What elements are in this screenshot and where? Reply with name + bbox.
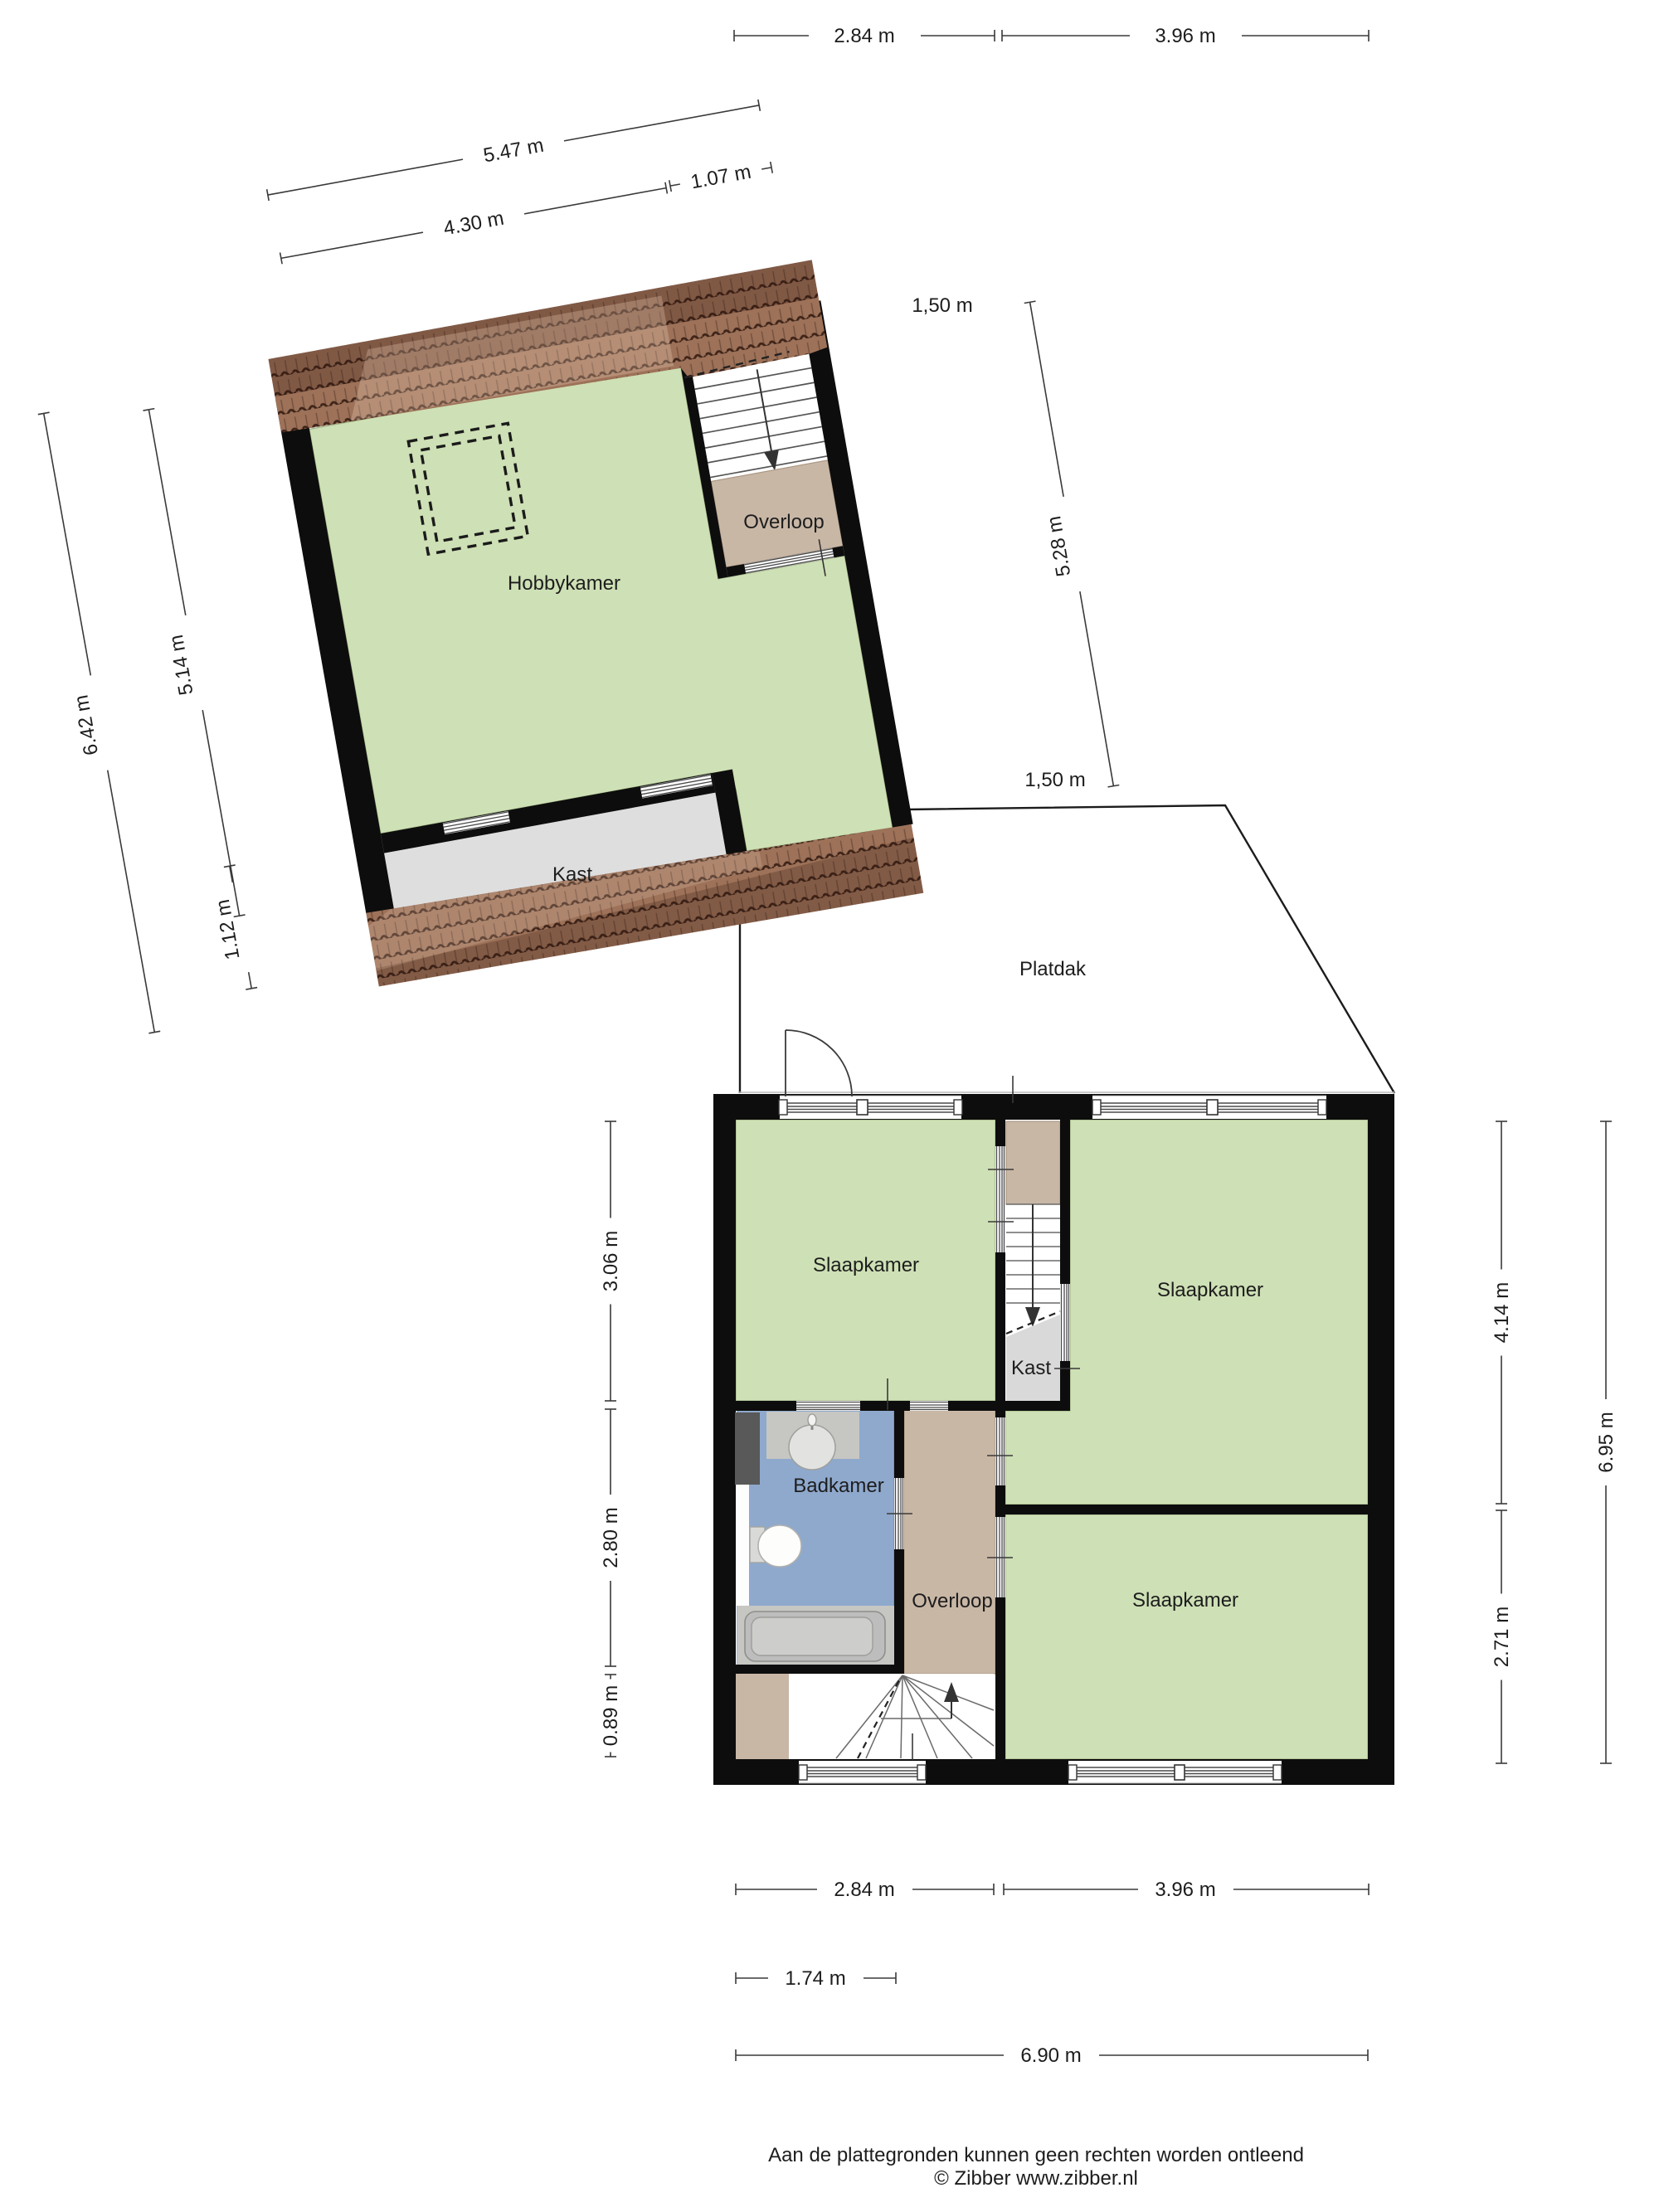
svg-text:Kast: Kast: [552, 863, 592, 886]
svg-text:6.90 m: 6.90 m: [1020, 2044, 1081, 2067]
svg-text:0.89 m: 0.89 m: [600, 1685, 622, 1746]
svg-text:3.96 m: 3.96 m: [1155, 25, 1215, 47]
svg-text:5.14 m: 5.14 m: [165, 633, 198, 697]
svg-text:Slaapkamer: Slaapkamer: [813, 1254, 919, 1276]
svg-text:1,50 m: 1,50 m: [912, 294, 972, 317]
svg-text:Slaapkamer: Slaapkamer: [1132, 1589, 1238, 1612]
svg-text:1,50 m: 1,50 m: [1024, 769, 1085, 791]
svg-text:Overloop: Overloop: [743, 511, 824, 533]
svg-text:Kast: Kast: [1011, 1357, 1051, 1379]
svg-text:1.07 m: 1.07 m: [689, 161, 753, 194]
svg-text:2.71 m: 2.71 m: [1491, 1607, 1513, 1667]
svg-text:4.14 m: 4.14 m: [1491, 1282, 1513, 1343]
svg-text:4.30 m: 4.30 m: [442, 207, 506, 241]
svg-text:2.80 m: 2.80 m: [600, 1507, 622, 1568]
svg-text:© Zibber www.zibber.nl: © Zibber www.zibber.nl: [934, 2167, 1138, 2190]
svg-text:5.47 m: 5.47 m: [482, 134, 546, 168]
svg-text:3.06 m: 3.06 m: [600, 1231, 622, 1291]
svg-text:Aan de plattegronden kunnen ge: Aan de plattegronden kunnen geen rechten…: [768, 2144, 1304, 2166]
svg-text:Platdak: Platdak: [1019, 958, 1087, 980]
svg-text:3.96 m: 3.96 m: [1155, 1879, 1215, 1901]
svg-text:Badkamer: Badkamer: [793, 1475, 883, 1497]
svg-text:2.84 m: 2.84 m: [834, 25, 894, 47]
svg-text:1.12 m: 1.12 m: [212, 897, 245, 961]
svg-text:Hobbykamer: Hobbykamer: [508, 572, 620, 595]
svg-text:Overloop: Overloop: [912, 1590, 992, 1612]
svg-text:2.84 m: 2.84 m: [834, 1879, 894, 1901]
svg-text:5.28 m: 5.28 m: [1043, 514, 1075, 578]
svg-text:6.95 m: 6.95 m: [1595, 1412, 1618, 1472]
svg-text:Slaapkamer: Slaapkamer: [1157, 1279, 1263, 1301]
svg-text:1.74 m: 1.74 m: [785, 1967, 845, 1990]
svg-text:6.42 m: 6.42 m: [70, 693, 103, 757]
